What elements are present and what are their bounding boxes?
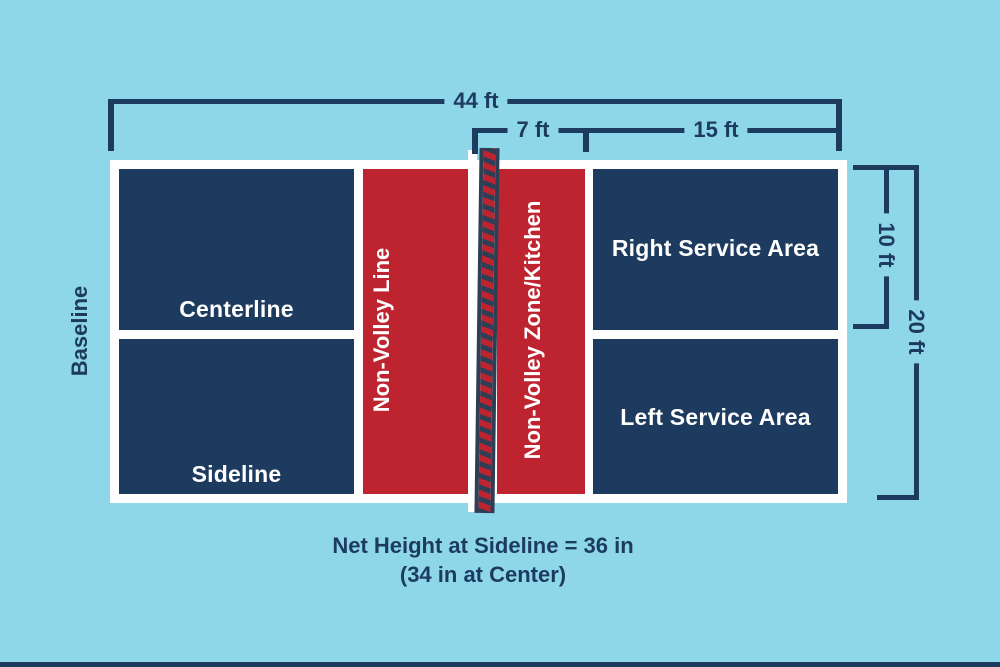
non-volley-zone-label: Non-Volley Zone/Kitchen: [520, 201, 546, 460]
bottom-accent-bar: [0, 662, 1000, 667]
non-volley-line-label: Non-Volley Line: [369, 248, 395, 413]
net-height-note-line2: (34 in at Center): [332, 560, 633, 589]
dim-20ft-bottom-cap: [877, 495, 919, 500]
dim-15ft-label: 15 ft: [684, 115, 747, 145]
dim-44ft-left-cap: [108, 99, 114, 151]
dim-7ft-left-cap: [472, 128, 478, 154]
sideline-label: Sideline: [119, 461, 354, 488]
net-height-note: Net Height at Sideline = 36 in (34 in at…: [332, 531, 633, 589]
dim-10ft-bottom-cap: [853, 324, 889, 329]
dim-44ft-label: 44 ft: [444, 86, 507, 116]
centerline-label: Centerline: [119, 296, 354, 323]
dim-20ft-label: 20 ft: [901, 300, 931, 363]
baseline-label: Baseline: [67, 286, 93, 377]
dim-7ft-15ft-mid-cap: [583, 128, 589, 152]
pickleball-court-diagram: Centerline Sideline Right Service Area L…: [0, 0, 1000, 667]
right-service-area-label: Right Service Area: [593, 235, 838, 262]
dim-10ft-label: 10 ft: [871, 213, 901, 276]
dim-7ft-label: 7 ft: [508, 115, 559, 145]
left-service-area-label: Left Service Area: [593, 404, 838, 431]
net-height-note-line1: Net Height at Sideline = 36 in: [332, 531, 633, 560]
dim-44ft-right-cap: [836, 99, 842, 151]
